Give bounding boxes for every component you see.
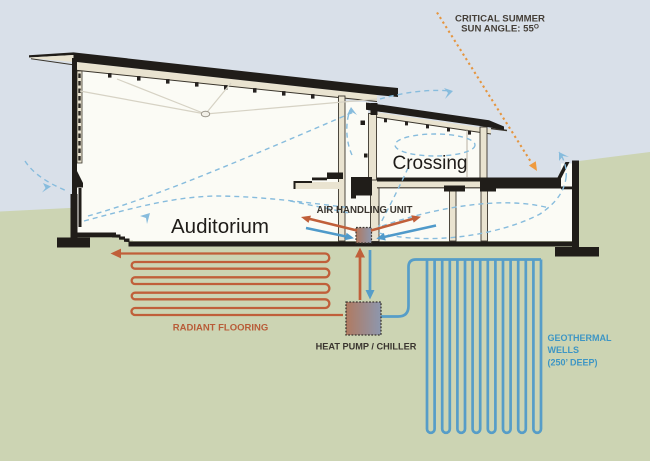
- svg-text:RADIANT FLOORING: RADIANT FLOORING: [173, 322, 269, 333]
- svg-text:HEAT PUMP / CHILLER: HEAT PUMP / CHILLER: [316, 342, 417, 352]
- svg-text:(250’ DEEP): (250’ DEEP): [548, 357, 598, 367]
- svg-text:GEOTHERMAL: GEOTHERMAL: [548, 333, 613, 343]
- svg-text:Auditorium: Auditorium: [171, 215, 269, 238]
- svg-text:AIR HANDLING UNIT: AIR HANDLING UNIT: [317, 205, 413, 216]
- svg-text:WELLS: WELLS: [548, 345, 580, 355]
- svg-text:Crossing: Crossing: [393, 153, 468, 174]
- svg-text:SUN ANGLE: 55O: SUN ANGLE: 55O: [461, 23, 539, 34]
